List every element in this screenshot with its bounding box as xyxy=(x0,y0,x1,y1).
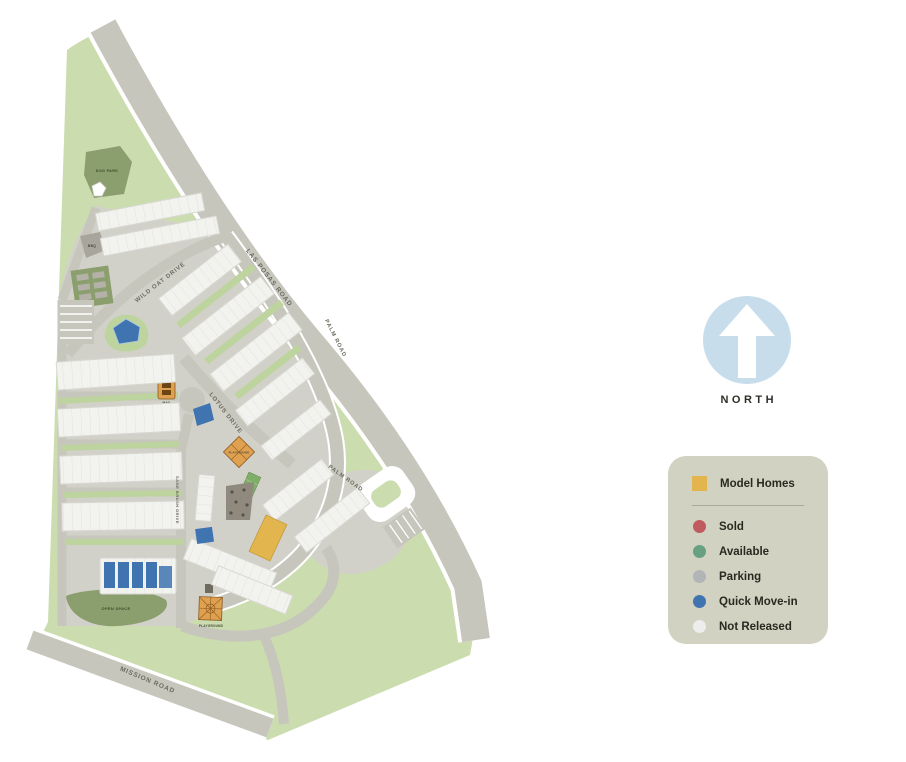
legend-divider xyxy=(692,505,804,506)
quick-move-in-unit[interactable] xyxy=(195,527,214,544)
legend-item-model-homes: Model Homes xyxy=(692,471,828,496)
community-map-page: DOG PARK BBQ GARDEN MAIL xyxy=(0,0,906,762)
north-indicator: NORTH xyxy=(702,296,792,406)
legend-label: Model Homes xyxy=(720,478,795,490)
sold-swatch xyxy=(693,520,706,533)
legend-label: Available xyxy=(719,546,769,558)
legend-item-parking: Parking xyxy=(692,564,828,589)
playground-lower-label: PLAYGROUND xyxy=(199,624,224,628)
building-row xyxy=(195,474,215,521)
legend-label: Not Released xyxy=(719,621,792,633)
north-arrow-icon xyxy=(703,296,791,384)
parking-swatch xyxy=(693,570,706,583)
legend-panel: Model Homes Sold Available Parking Quick… xyxy=(668,456,828,644)
parking-stalls-left xyxy=(58,300,94,344)
legend-label: Quick Move-in xyxy=(719,596,798,608)
mail-slot-icon xyxy=(162,390,171,395)
north-label: NORTH xyxy=(702,394,792,406)
available-swatch xyxy=(693,545,706,558)
site-map: DOG PARK BBQ GARDEN MAIL xyxy=(0,0,500,762)
legend-label: Parking xyxy=(719,571,761,583)
not-released-swatch xyxy=(693,620,706,633)
model-homes-swatch xyxy=(692,476,707,491)
building-row xyxy=(62,501,184,531)
bbq-label: BBQ xyxy=(88,244,96,248)
legend-item-available: Available xyxy=(692,539,828,564)
legend-item-sold: Sold xyxy=(692,514,828,539)
legend-label: Sold xyxy=(719,521,744,533)
building-row xyxy=(60,452,183,484)
playground-lower xyxy=(199,597,223,621)
building-row xyxy=(57,403,180,437)
quick-move-in-swatch xyxy=(693,595,706,608)
mail-slot-icon xyxy=(162,383,171,388)
legend-item-not-released: Not Released xyxy=(692,614,828,639)
legend-item-quick-move-in: Quick Move-in xyxy=(692,589,828,614)
dog-park-label: DOG PARK xyxy=(96,169,119,173)
playground-upper-label: PLAYGROUND xyxy=(229,451,250,455)
grill-icon xyxy=(205,584,213,593)
road-label-sage: SAGE BRUSH DRIVE xyxy=(175,476,180,524)
open-space-label: OPEN SPACE xyxy=(102,606,131,611)
